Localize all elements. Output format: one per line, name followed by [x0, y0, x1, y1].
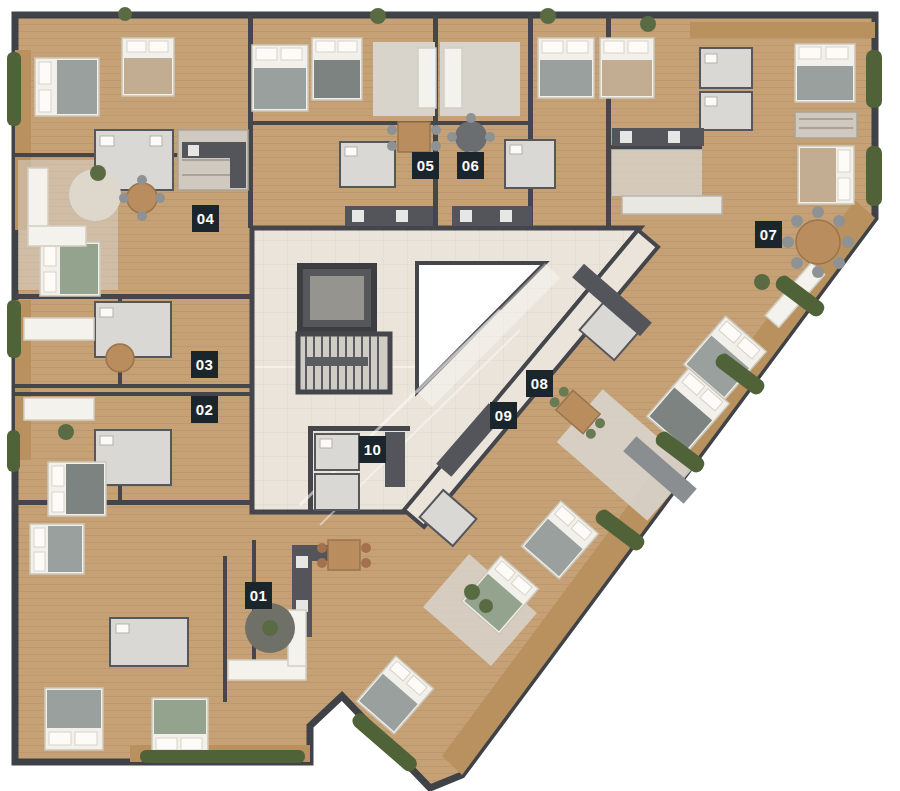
unit-badge-10: 10	[359, 436, 386, 463]
elevator-core	[300, 266, 374, 330]
unit-badge-04: 04	[192, 205, 219, 232]
unit-badge-09: 09	[490, 402, 517, 429]
unit-badge-07: 07	[755, 221, 782, 248]
elevator-cab	[310, 276, 364, 320]
stair-landing	[306, 357, 368, 366]
unit-badge-08: 08	[526, 370, 553, 397]
floor-plan-drawing	[0, 0, 900, 791]
floor-plan-image: 01 02 03 04 05 06 07 08 09 10	[0, 0, 900, 791]
unit-badge-03: 03	[191, 351, 218, 378]
unit-badge-06: 06	[457, 152, 484, 179]
unit-badge-01: 01	[245, 582, 272, 609]
staircase	[298, 334, 390, 392]
wardrobe	[795, 112, 857, 138]
unit-badge-02: 02	[191, 396, 218, 423]
unit-badge-05: 05	[412, 152, 439, 179]
